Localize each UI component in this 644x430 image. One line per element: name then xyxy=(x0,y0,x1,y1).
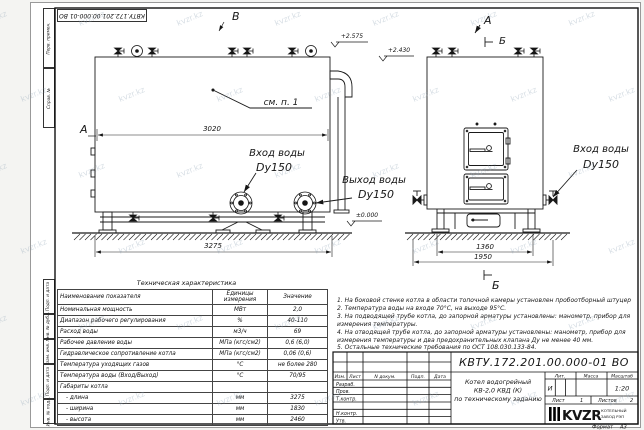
right-side-valve-icon xyxy=(543,191,557,205)
note-item: 2. Температура воды на входе 70°С, на вы… xyxy=(337,305,638,313)
format-value: А3 xyxy=(619,425,627,430)
kvzr-logo: KVZR КОТЕЛЬНЫЙ ЗАВОД РЭП xyxy=(549,407,627,424)
dim-1360: 1360 xyxy=(476,243,494,251)
boiler-front-view xyxy=(405,25,577,280)
elevation-ground: ±0.000 xyxy=(356,212,378,219)
boiler-side-view xyxy=(72,46,352,241)
outlet-label: Выход воды xyxy=(342,175,406,186)
drawing-sheet-page: Перв. примен. Справ. № Подп. и дата Инв.… xyxy=(0,0,644,430)
inlet-right-dy: Dy150 xyxy=(583,158,619,171)
inlet-left-label: Вход воды xyxy=(249,148,305,159)
row-tkontr: Т.контр. xyxy=(336,397,357,403)
drawing-labels: В А см. п. 1 3020 3275 1360 1950 +2.575 … xyxy=(79,10,629,292)
section-label-b-bottom: Б xyxy=(492,279,500,292)
product-name-3: по техническому заданию xyxy=(454,396,542,403)
upper-furnace-door xyxy=(464,128,510,170)
note-item: 3. На подводящей трубе котла, до запорно… xyxy=(337,313,638,329)
section-label-b-right: Б xyxy=(499,36,506,47)
dim-3275: 3275 xyxy=(204,242,222,250)
mass-label: Масса xyxy=(584,374,599,380)
inlet-flange-icon xyxy=(230,192,252,214)
row-prov: Пров. xyxy=(336,389,350,395)
table-row: Номинальная мощностьМВт2,0 xyxy=(58,305,328,316)
table-row: - ширинамм1830 xyxy=(58,404,328,415)
row-nkontr: Н.контр. xyxy=(336,411,357,417)
sheets-label: Листов xyxy=(597,398,617,404)
table-row: Габариты котла xyxy=(58,382,328,393)
note-item: 5. Остальные технические требования по О… xyxy=(337,344,638,352)
table-row: - длинамм3275 xyxy=(58,393,328,404)
sheets-value: 2 xyxy=(630,398,633,404)
sheet-label: Лист xyxy=(551,398,566,404)
row-utv: Утв. xyxy=(336,418,346,424)
table-row: - высотамм2460 xyxy=(58,415,328,426)
table-title: Техническая характеристика xyxy=(57,279,316,287)
note-item: 4. На отводящей трубе котла, до запорной… xyxy=(337,329,638,345)
col-docnum: N докум. xyxy=(374,374,395,380)
col-data: Дата xyxy=(433,374,446,380)
col-podp: Подп. xyxy=(411,374,425,380)
inlet-left-dy: Dy150 xyxy=(256,161,292,174)
col-list: Лист xyxy=(348,374,361,380)
dim-3020: 3020 xyxy=(203,125,221,133)
header-value: Значение xyxy=(268,290,328,305)
doc-number: КВТУ.172.201.00.000-01 ВО xyxy=(459,356,629,369)
tech-table: Наименование показателя Единицы измерени… xyxy=(57,289,328,426)
outlet-dy: Dy150 xyxy=(358,188,394,201)
scale-label: Масштаб xyxy=(611,374,633,380)
sheet-value: 1 xyxy=(580,398,583,404)
note-item: 1. На боковой стенке котла в области топ… xyxy=(337,297,638,305)
table-row: Гидравлическое сопротивление котлаМПа (к… xyxy=(58,349,328,360)
company-name-2: ЗАВОД РЭП xyxy=(601,414,624,419)
callout-see-item: см. п. 1 xyxy=(264,98,299,108)
lit-label: Лит. xyxy=(554,374,566,380)
product-name-1: Котел водогрейный xyxy=(465,379,531,386)
elevation-top: +2.575 xyxy=(341,33,363,40)
table-row: Температура уходящих газов°Сне более 280 xyxy=(58,360,328,371)
format-label: Формат xyxy=(592,425,614,430)
row-razrab: Разраб. xyxy=(336,382,355,388)
top-valve-icon xyxy=(115,48,125,57)
inlet-right-label: Вход воды xyxy=(573,144,629,155)
tech-characteristics: Техническая характеристика Наименование … xyxy=(57,279,316,426)
left-side-valve-icon xyxy=(413,191,427,205)
lower-furnace-door xyxy=(464,174,508,204)
header-name: Наименование показателя xyxy=(58,290,213,305)
elevation-boiler-top: +2.430 xyxy=(388,47,410,54)
section-label-a-left: А xyxy=(79,123,88,136)
table-row: Расход водым3/ч69 xyxy=(58,327,328,338)
col-izm: Изм. xyxy=(335,374,346,380)
table-row: Температура воды (Вход/Выход)°С70/95 xyxy=(58,371,328,382)
company-name-1: КОТЕЛЬНЫЙ xyxy=(601,408,627,413)
section-label-a-right: А xyxy=(483,14,492,27)
section-label-b: В xyxy=(232,10,240,23)
header-units: Единицы измерения xyxy=(213,290,268,305)
notes-block: 1. На боковой стенке котла в области топ… xyxy=(337,297,638,352)
lit-value: И xyxy=(548,385,553,393)
dim-1950: 1950 xyxy=(474,253,492,261)
product-name-2: КВ-2,0 КВД (К) xyxy=(474,388,522,395)
table-row: Диапазон рабочего регулирования%40-110 xyxy=(58,316,328,327)
logo-text: KVZR xyxy=(562,408,602,424)
scale-value: 1:20 xyxy=(615,385,630,393)
table-row: Рабочее давление водыМПа (кгс/см2)0,6 (6… xyxy=(58,338,328,349)
title-block-text: КВТУ.172.201.00.000-01 ВО Изм. Лист N до… xyxy=(335,356,634,430)
flue-elbow xyxy=(330,71,352,97)
outlet-flange-icon xyxy=(294,192,316,214)
